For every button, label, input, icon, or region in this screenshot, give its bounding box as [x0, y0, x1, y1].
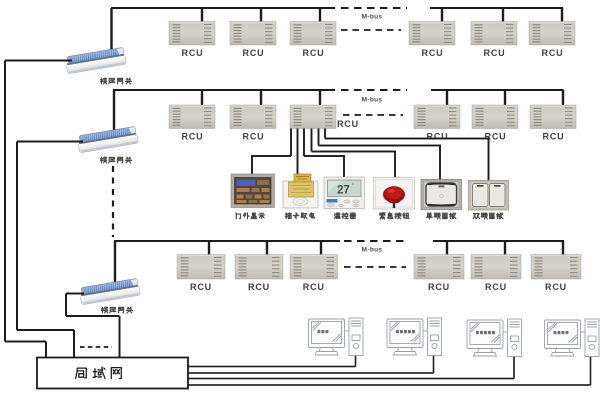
svg-text:RCU: RCU	[337, 119, 359, 129]
svg-text:RCU: RCU	[243, 132, 265, 142]
svg-text:RCU: RCU	[182, 48, 204, 58]
svg-text:RCU: RCU	[182, 132, 204, 142]
svg-text:RCU: RCU	[243, 48, 265, 58]
svg-text:RCU: RCU	[422, 48, 444, 58]
svg-text:M-bus: M-bus	[362, 247, 383, 254]
svg-text:RCU: RCU	[427, 132, 449, 142]
svg-text:RCU: RCU	[303, 282, 325, 292]
svg-text:RCU: RCU	[428, 282, 450, 292]
svg-text:RCU: RCU	[303, 48, 325, 58]
svg-text:RCU: RCU	[543, 132, 565, 142]
svg-text:RCU: RCU	[542, 48, 564, 58]
svg-text:RCU: RCU	[190, 282, 212, 292]
svg-text:RCU: RCU	[545, 282, 567, 292]
svg-text:M-bus: M-bus	[362, 14, 383, 21]
svg-text:27: 27	[337, 185, 350, 197]
svg-text:RCU: RCU	[248, 282, 270, 292]
svg-text:RCU: RCU	[485, 282, 507, 292]
svg-text:M-bus: M-bus	[362, 97, 383, 104]
svg-text:RCU: RCU	[484, 48, 506, 58]
